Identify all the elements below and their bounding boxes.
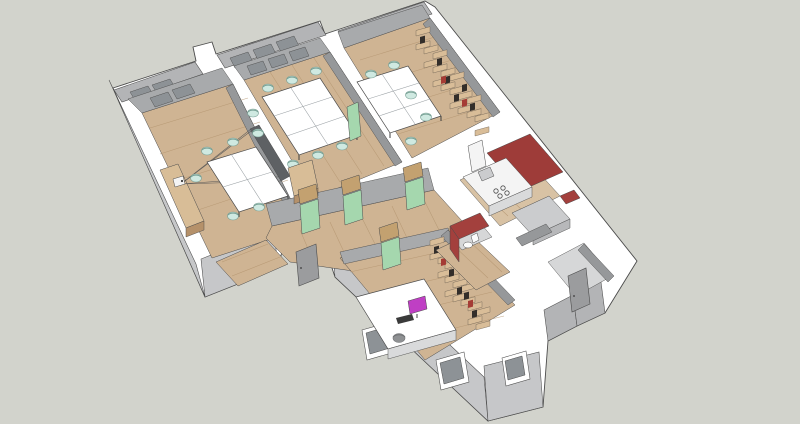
- entry-door: [296, 244, 319, 286]
- model-viewport-stage: [0, 0, 800, 424]
- door-2: [341, 175, 363, 225]
- office-chair: [393, 334, 405, 343]
- door-3: [403, 162, 425, 210]
- orbit-viewport[interactable]: [0, 0, 800, 424]
- office-door: [379, 222, 401, 270]
- door-1: [298, 184, 320, 234]
- wing-door: [568, 268, 590, 312]
